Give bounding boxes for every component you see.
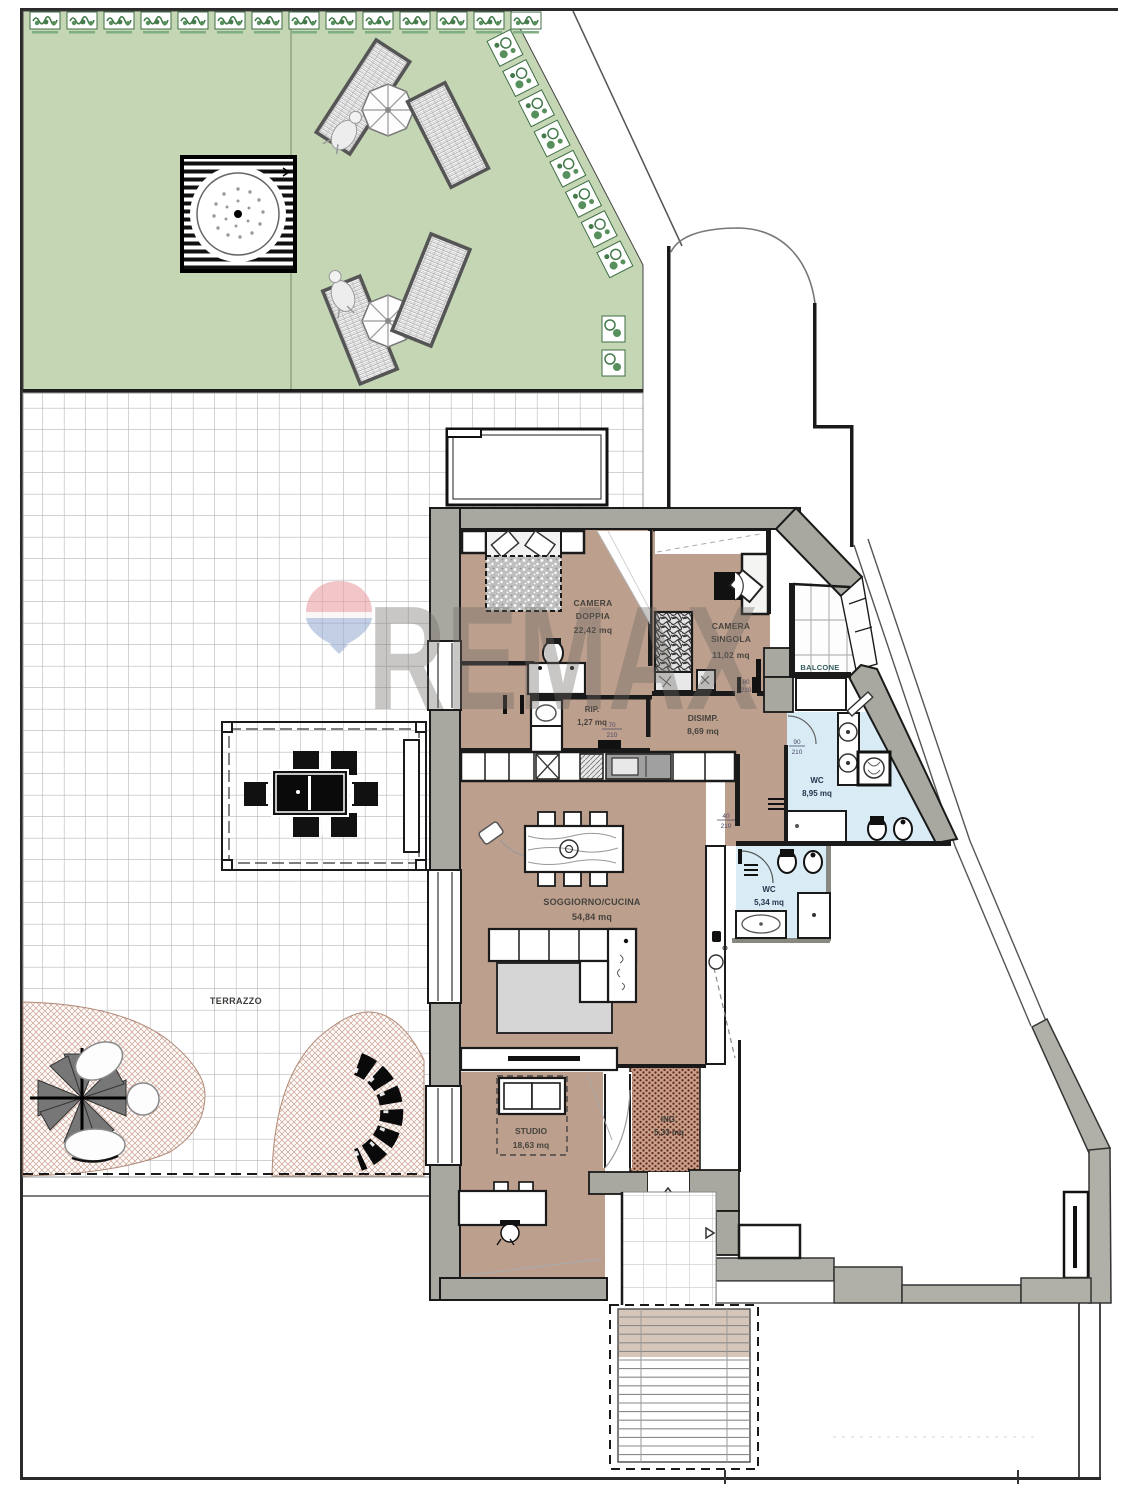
svg-text:REMAX: REMAX — [368, 576, 758, 741]
svg-text:5,33 mq: 5,33 mq — [654, 1128, 684, 1137]
svg-text:5,34 mq: 5,34 mq — [754, 898, 784, 907]
svg-text:210: 210 — [721, 823, 732, 830]
svg-text:WC: WC — [762, 885, 776, 894]
svg-text:210: 210 — [792, 749, 803, 756]
svg-text:SOGGIORNO/CUCINA: SOGGIORNO/CUCINA — [543, 897, 641, 907]
svg-text:40: 40 — [722, 813, 730, 820]
svg-text:90: 90 — [793, 739, 801, 746]
svg-text:ING.: ING. — [661, 1115, 677, 1124]
svg-text:8,95 mq: 8,95 mq — [802, 789, 832, 798]
svg-text:18,63 mq: 18,63 mq — [513, 1140, 549, 1150]
svg-text:WC: WC — [810, 776, 824, 785]
svg-text:TERRAZZO: TERRAZZO — [210, 996, 262, 1006]
svg-text:54,84 mq: 54,84 mq — [572, 912, 612, 922]
svg-text:STUDIO: STUDIO — [515, 1126, 548, 1136]
svg-text:BALCONE: BALCONE — [800, 663, 839, 672]
